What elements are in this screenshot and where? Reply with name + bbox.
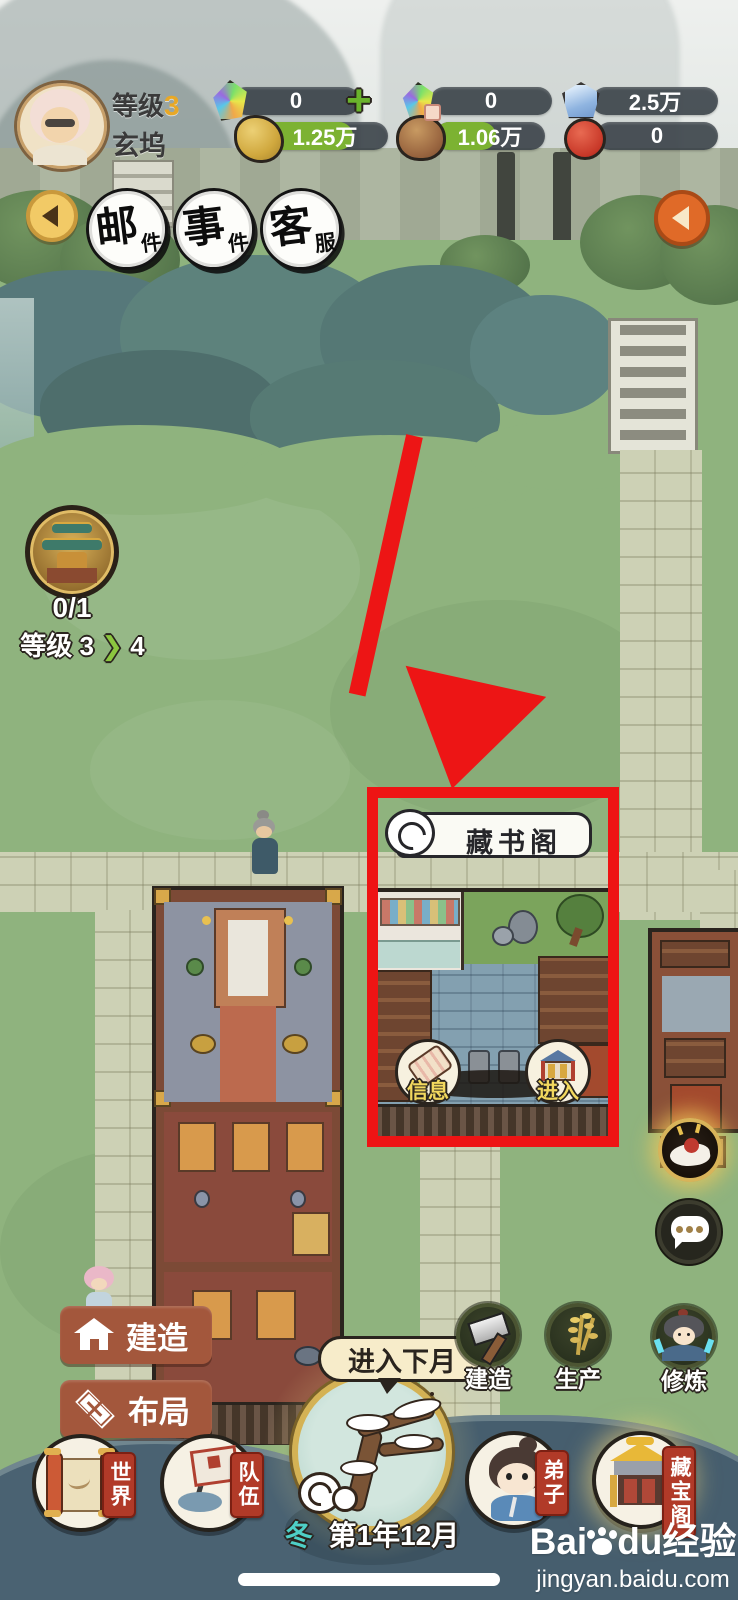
mail-label-main: 邮 [92,191,141,257]
gem-counter: 0 [232,87,360,115]
hand-pearl-icon [662,1122,718,1178]
enter-button[interactable]: 进入 [525,1039,591,1105]
upgrade-level-to: 4 [130,631,144,661]
disciple-label: 弟子 [535,1450,569,1516]
next-month-button[interactable] [292,1372,452,1532]
info-button[interactable]: 信息 [395,1039,461,1105]
watermark-logo-suffix: du [617,1521,662,1562]
upgrade-count: 0/1 [25,592,119,624]
build-action-button[interactable] [456,1303,520,1367]
seal-counter: 0 [596,122,718,150]
enter-label: 进入 [528,1075,588,1105]
service-label-sub: 服 [313,226,337,258]
temple-icon [30,510,114,594]
layout-menu-label: 布局 [128,1387,190,1432]
build-menu-button[interactable]: 建造 [60,1306,212,1364]
locked-gem-counter: 0 [430,87,552,115]
seal-icon [564,118,606,160]
upgrade-building-badge[interactable] [25,505,119,599]
game-screen: 等级3 玄坞 0 + 0 2.5万 1.25万 1.06万 0 邮 件 事 件 … [0,0,738,1600]
bubble-tail [378,1378,401,1394]
avatar-glasses [45,119,75,127]
build-action-label: 建造 [448,1360,528,1394]
back-button[interactable] [26,190,78,242]
level-label: 等级 [112,91,164,121]
avatar[interactable] [14,80,110,172]
service-label-main: 客 [266,191,315,257]
side-building[interactable] [648,928,738,1133]
date-label: 第1年12月 [329,1520,460,1551]
player-level: 等级3 [112,86,180,123]
next-month-bubble-label: 进入下月 [348,1340,456,1379]
produce-action-button[interactable] [546,1303,610,1367]
chat-button[interactable] [657,1200,721,1264]
altar-room [164,902,332,1102]
upgrade-level-label: 等级 [20,631,72,661]
watermark-url: jingyan.baidu.com [528,1566,738,1594]
paw-icon [587,1528,617,1558]
wood-counter: 1.06万 [435,122,545,150]
grass-patch [90,700,350,840]
home-indicator[interactable] [238,1573,500,1586]
lock-icon [424,104,441,121]
build-menu-label: 建造 [126,1313,188,1358]
npc-elder[interactable] [248,814,282,876]
crystal-counter: 2.5万 [592,87,718,115]
upgrade-arrow-icon: ❯ [101,631,123,661]
upgrade-level-from: 3 [80,631,94,661]
upgrade-level-row: 等级 3 ❯ 4 [0,626,165,663]
collapse-button[interactable] [654,190,710,246]
event-label-sub: 件 [226,226,250,258]
watermark: Baidu经验 jingyan.baidu.com [528,1522,738,1594]
team-label: 队伍 [230,1452,264,1518]
cultivate-action-label: 修炼 [644,1362,724,1396]
stone-staircase [608,318,698,454]
world-label: 世界 [102,1452,136,1518]
produce-action-label: 生产 [538,1360,618,1394]
layout-menu-button[interactable]: 布局 [60,1380,212,1438]
bed-room [164,1112,332,1262]
stone-path-vertical-right [620,450,702,920]
back-arrow-icon [42,205,58,227]
month-date-row: 冬 第1年12月 [252,1514,492,1554]
watermark-logo-prefix: Bai [530,1521,588,1562]
collapse-arrow-icon [672,206,689,230]
season-label: 冬 [285,1520,313,1551]
info-label: 信息 [398,1075,458,1105]
avatar-robe [33,145,87,165]
player-name: 玄坞 [112,124,166,163]
plus-button[interactable]: + [346,76,372,126]
event-label-main: 事 [179,191,228,257]
grid-icon [74,1392,116,1426]
collect-hand-button[interactable] [658,1118,722,1182]
level-value: 3 [164,90,180,121]
wood-icon [396,115,446,161]
house-icon [74,1318,114,1352]
cultivate-action-button[interactable] [652,1305,716,1369]
mail-label-sub: 件 [139,226,163,258]
watermark-logo-cn: 经验 [662,1521,736,1562]
chat-bubble-icon [671,1216,709,1242]
